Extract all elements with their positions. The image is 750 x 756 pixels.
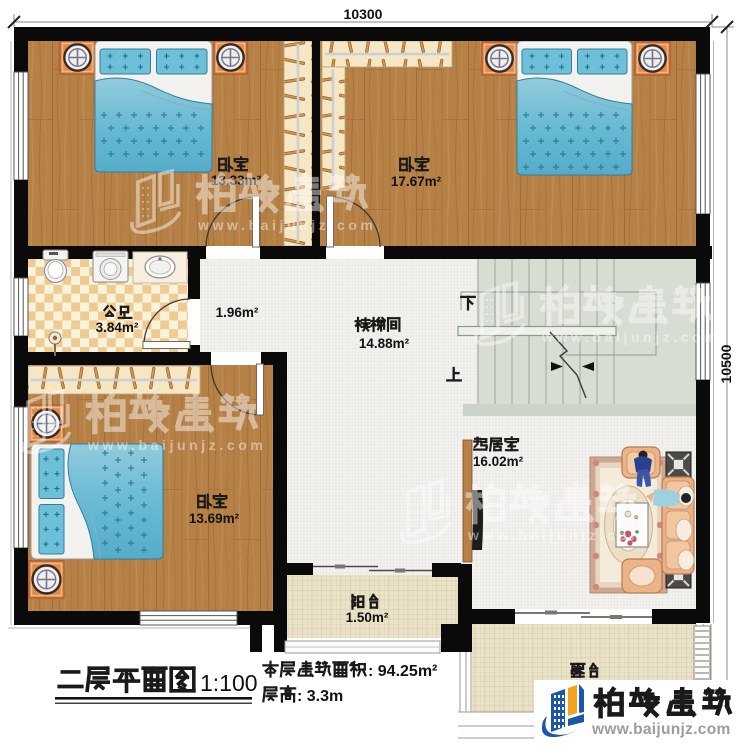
svg-text:10500: 10500	[718, 344, 734, 383]
svg-text:10300: 10300	[344, 6, 383, 22]
svg-text:: 3.3m: : 3.3m	[297, 688, 343, 705]
svg-text:: 94.25m²: : 94.25m²	[368, 663, 437, 680]
svg-text:www.baijunjz.com: www.baijunjz.com	[197, 217, 376, 233]
svg-text:1.50m²: 1.50m²	[346, 610, 389, 625]
svg-text:3.84m²: 3.84m²	[96, 320, 139, 335]
svg-text:16.02m²: 16.02m²	[473, 454, 524, 469]
svg-text:1.96m²: 1.96m²	[216, 305, 259, 320]
svg-text:13.69m²: 13.69m²	[189, 511, 240, 526]
svg-text:www.baijunjz.com: www.baijunjz.com	[87, 437, 266, 453]
svg-text:17.67m²: 17.67m²	[391, 174, 442, 189]
svg-text:14.88m²: 14.88m²	[359, 336, 410, 351]
svg-text:www.baijunjz.com: www.baijunjz.com	[541, 329, 720, 345]
svg-text:1:100: 1:100	[200, 670, 258, 696]
svg-text:www.baijunjz.com: www.baijunjz.com	[591, 721, 731, 738]
svg-text:www.baijunjz.com: www.baijunjz.com	[467, 527, 646, 543]
